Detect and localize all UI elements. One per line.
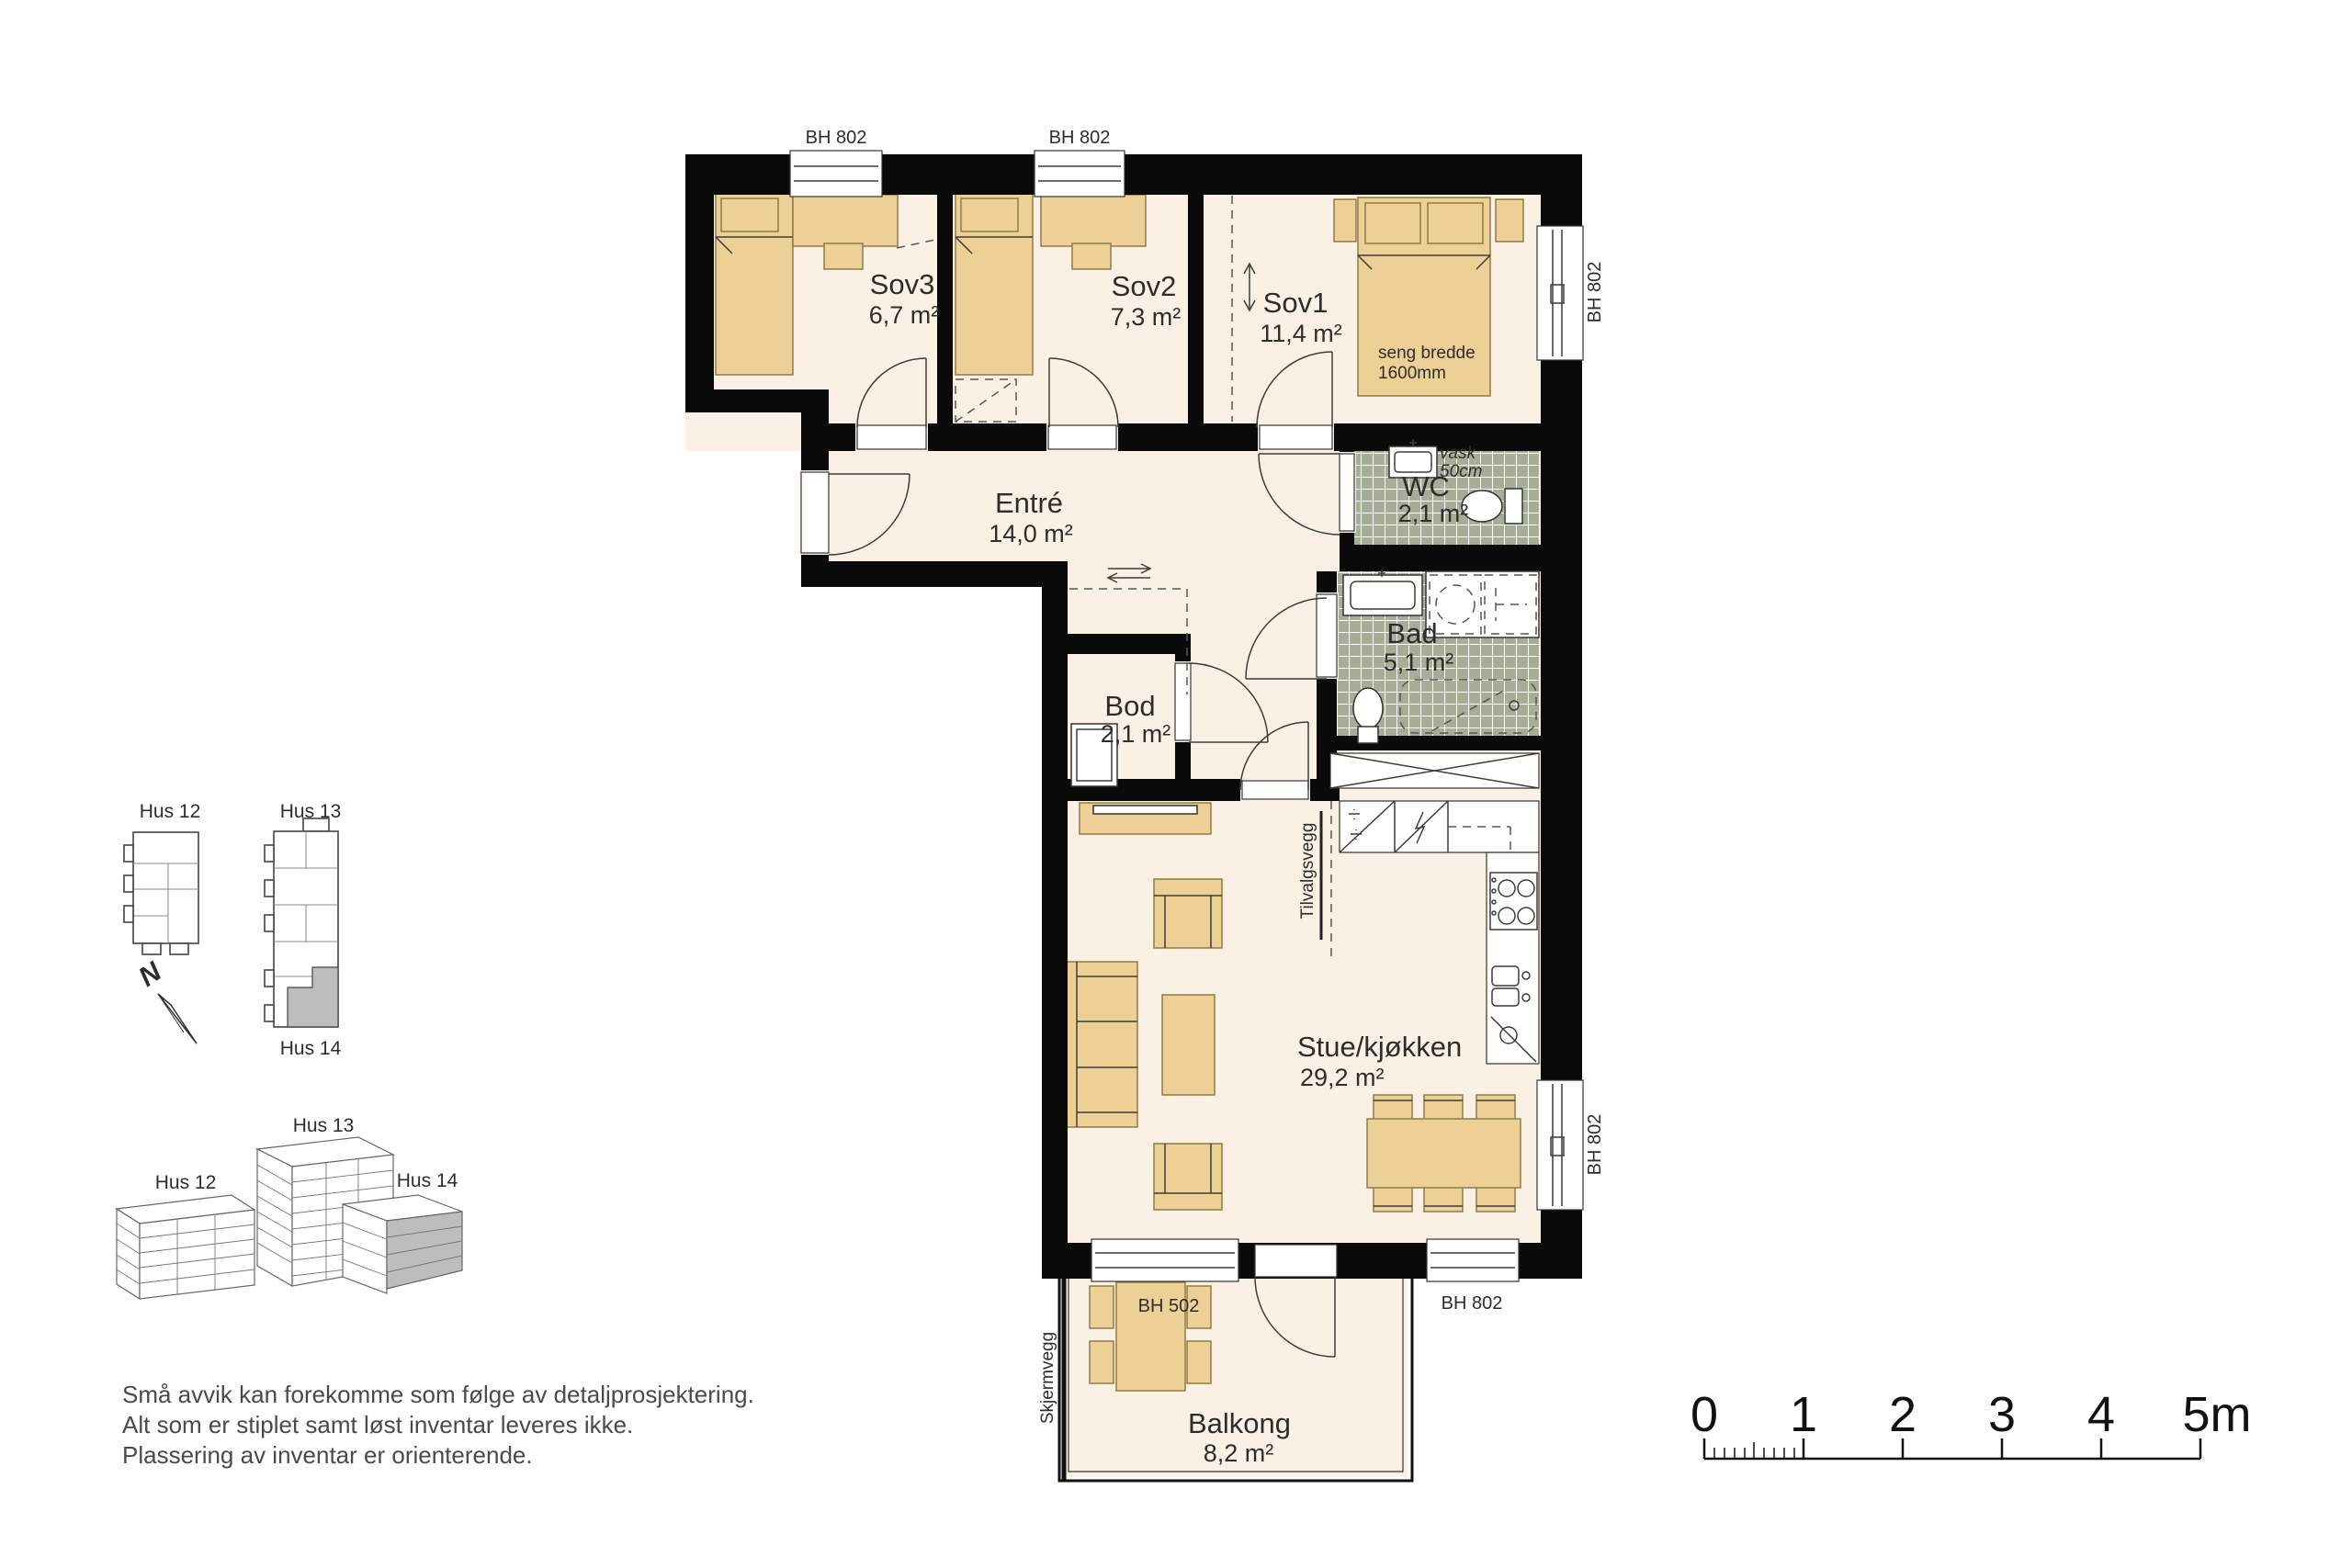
label-bh802-right-stue: BH 802 [1585,1114,1605,1176]
room-label-sov2-area: 7,3 m² [1111,303,1182,331]
bed-sov2 [955,193,1033,375]
room-label-entre-name: Entré [995,487,1063,519]
armchair-1 [1154,879,1222,948]
label-bh502-balcony: BH 502 [1138,1296,1200,1316]
window-stue-bottom-left [1091,1239,1238,1281]
label-bh802-top-sov2: BH 802 [1049,128,1111,148]
armchair-2 [1154,1144,1222,1210]
window-stue-bottom-right [1427,1239,1519,1281]
scale-label-3: 3 [1988,1387,2016,1442]
label-vask: vask [1440,444,1477,463]
north-arrow: N [133,956,197,1043]
room-label-bad-area: 5,1 m² [1384,649,1454,676]
label-bh802-bottom: BH 802 [1442,1293,1503,1314]
room-label-balkong-area: 8,2 m² [1204,1439,1274,1467]
window-stue-right [1537,1080,1583,1210]
room-label-stue-area: 29,2 m² [1300,1064,1385,1091]
room-label-bad-name: Bad [1386,617,1437,649]
window-sov3 [790,151,882,197]
iso-hus14 [343,1195,462,1293]
scale-bar: 0 1 2 3 4 5m [1690,1387,2252,1459]
room-label-bod-area: 2,1 m² [1101,720,1171,748]
coffee-table [1162,995,1215,1095]
room-label-sov3-name: Sov3 [870,268,935,300]
scale-label-2: 2 [1889,1387,1917,1442]
scale-label-4: 4 [2087,1387,2115,1442]
iso-hus12 [117,1195,254,1299]
disclaimer-line-1: Små avvik kan forekomme som følge av det… [122,1381,754,1408]
floor-plan-sheet: Sov3 6,7 m² Sov2 7,3 m² Sov1 11,4 m² Ent… [0,0,2352,1568]
disclaimer-line-3: Plassering av inventar er orienterende. [122,1441,533,1469]
dining-table-group [1367,1095,1521,1212]
sofa [1061,962,1137,1127]
site-hus12-footprint [124,832,198,954]
room-label-sov3-area: 6,7 m² [869,301,940,329]
north-arrow-icon [158,994,197,1043]
room-label-balkong-name: Balkong [1188,1407,1291,1439]
room-label-sov1-name: Sov1 [1263,287,1329,319]
iso-highlighted-unit [387,1212,462,1289]
bed-sov3 [716,193,793,375]
label-seng-bredde: seng bredde [1378,344,1476,363]
site-hus13-footprint [265,818,338,1027]
room-label-sov2-name: Sov2 [1112,270,1177,302]
tv-bench [1080,803,1211,834]
room-label-wc-area: 2,1 m² [1398,500,1469,527]
disclaimer: Små avvik kan forekomme som følge av det… [122,1381,754,1469]
window-sov2 [1035,151,1125,197]
label-seng-bredde-value: 1600mm [1378,364,1446,383]
shaft-wardrobe-box [1330,753,1539,788]
iso-label-hus13: Hus 13 [293,1115,355,1136]
label-skjermvegg: Skjermvegg [1038,1332,1057,1424]
label-tilvalgsvegg: Tilvalgsvegg [1298,823,1317,919]
window-sov1-right [1537,226,1583,360]
floor-plan-drawing: Sov3 6,7 m² Sov2 7,3 m² Sov1 11,4 m² Ent… [0,0,2352,1568]
disclaimer-line-2: Alt som er stiplet samt løst inventar le… [122,1411,633,1438]
site-label-hus12: Hus 12 [140,801,201,822]
label-vask-size: 50cm [1440,462,1482,481]
north-label: N [133,956,168,993]
room-label-sov1-area: 11,4 m² [1260,320,1342,347]
room-label-entre-area: 14,0 m² [989,520,1073,547]
label-bh802-top-sov3: BH 802 [806,128,867,148]
site-label-hus14: Hus 14 [280,1038,342,1059]
room-label-bod-name: Bod [1104,690,1155,722]
scale-label-0: 0 [1690,1387,1718,1442]
scale-label-5m: 5m [2182,1387,2251,1442]
iso-label-hus14: Hus 14 [397,1170,458,1191]
iso-label-hus12: Hus 12 [155,1172,217,1193]
kitchen-counter [1487,852,1539,1064]
isometric-overview: Hus 13 Hus 12 Hus 14 [117,1115,462,1299]
scale-minor-ticks [1714,1442,1794,1459]
scale-label-1: 1 [1790,1387,1817,1442]
room-label-stue-name: Stue/kjøkken [1297,1031,1462,1063]
label-bh802-right-sov1: BH 802 [1585,262,1605,323]
site-plan: Hus 12 Hus 13 Hus 14 N [124,801,342,1059]
